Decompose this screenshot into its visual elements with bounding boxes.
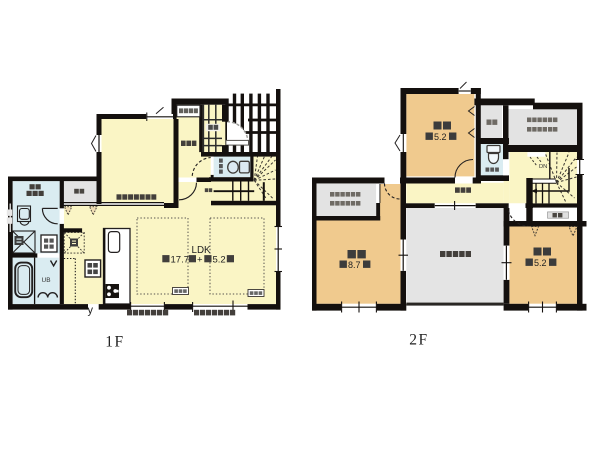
svg-text:UB: UB xyxy=(42,277,51,284)
svg-text:5.2: 5.2 xyxy=(534,258,547,268)
svg-text:8.7: 8.7 xyxy=(348,260,361,270)
svg-text:2F: 2F xyxy=(409,332,428,349)
svg-text:+: + xyxy=(197,254,203,265)
svg-text:1F: 1F xyxy=(105,334,124,351)
svg-text:y: y xyxy=(88,305,94,317)
svg-text:5.2: 5.2 xyxy=(434,132,447,142)
svg-text:5.2: 5.2 xyxy=(213,254,226,265)
svg-text:17.7: 17.7 xyxy=(171,254,190,265)
svg-text:DN: DN xyxy=(539,164,547,170)
